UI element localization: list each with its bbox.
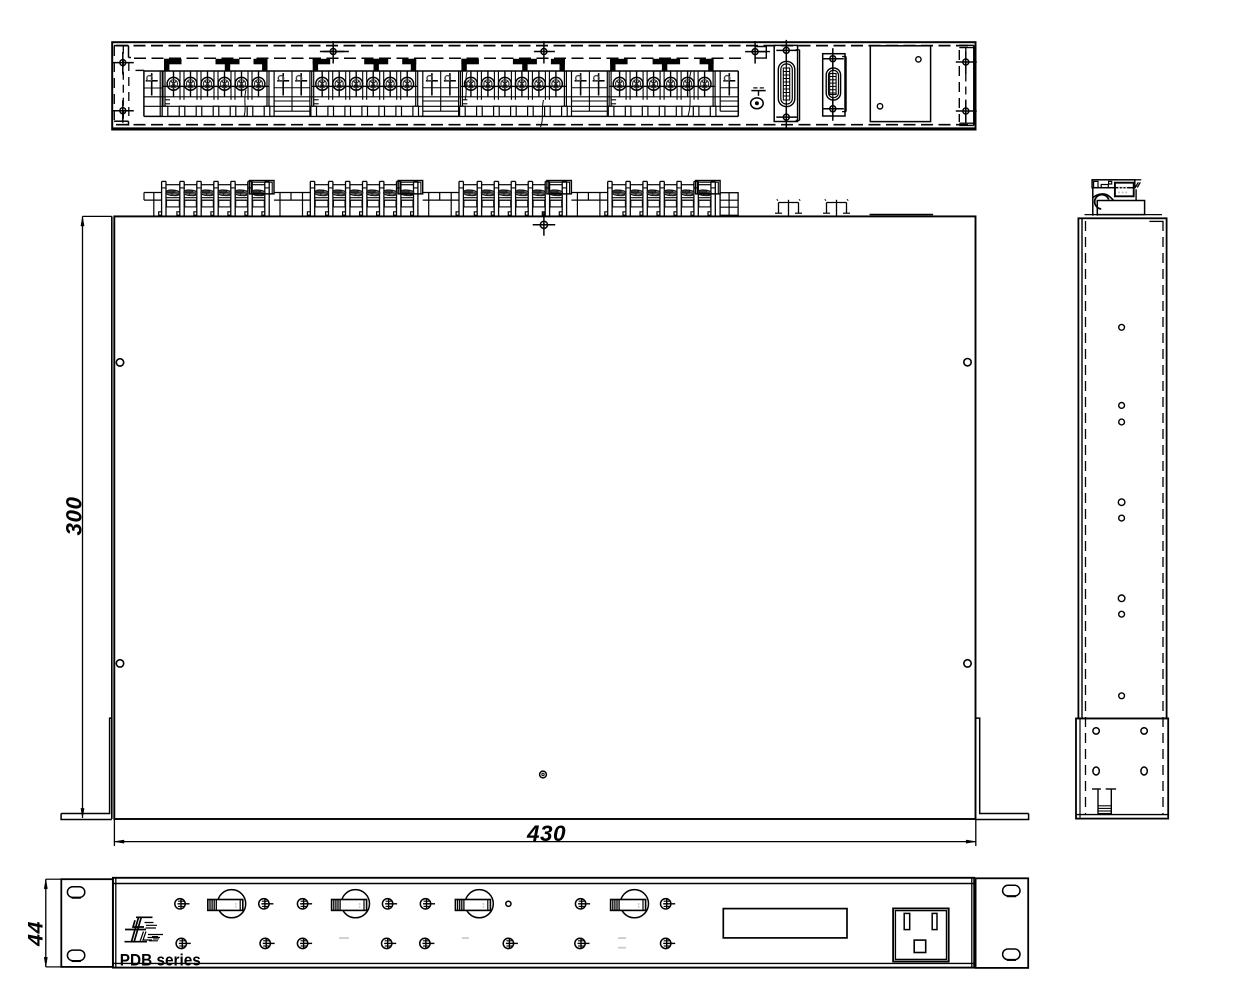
svg-text:44: 44	[24, 921, 48, 947]
svg-text:430: 430	[526, 821, 566, 846]
svg-text:PDB series: PDB series	[120, 950, 201, 969]
svg-text:300: 300	[62, 496, 87, 535]
